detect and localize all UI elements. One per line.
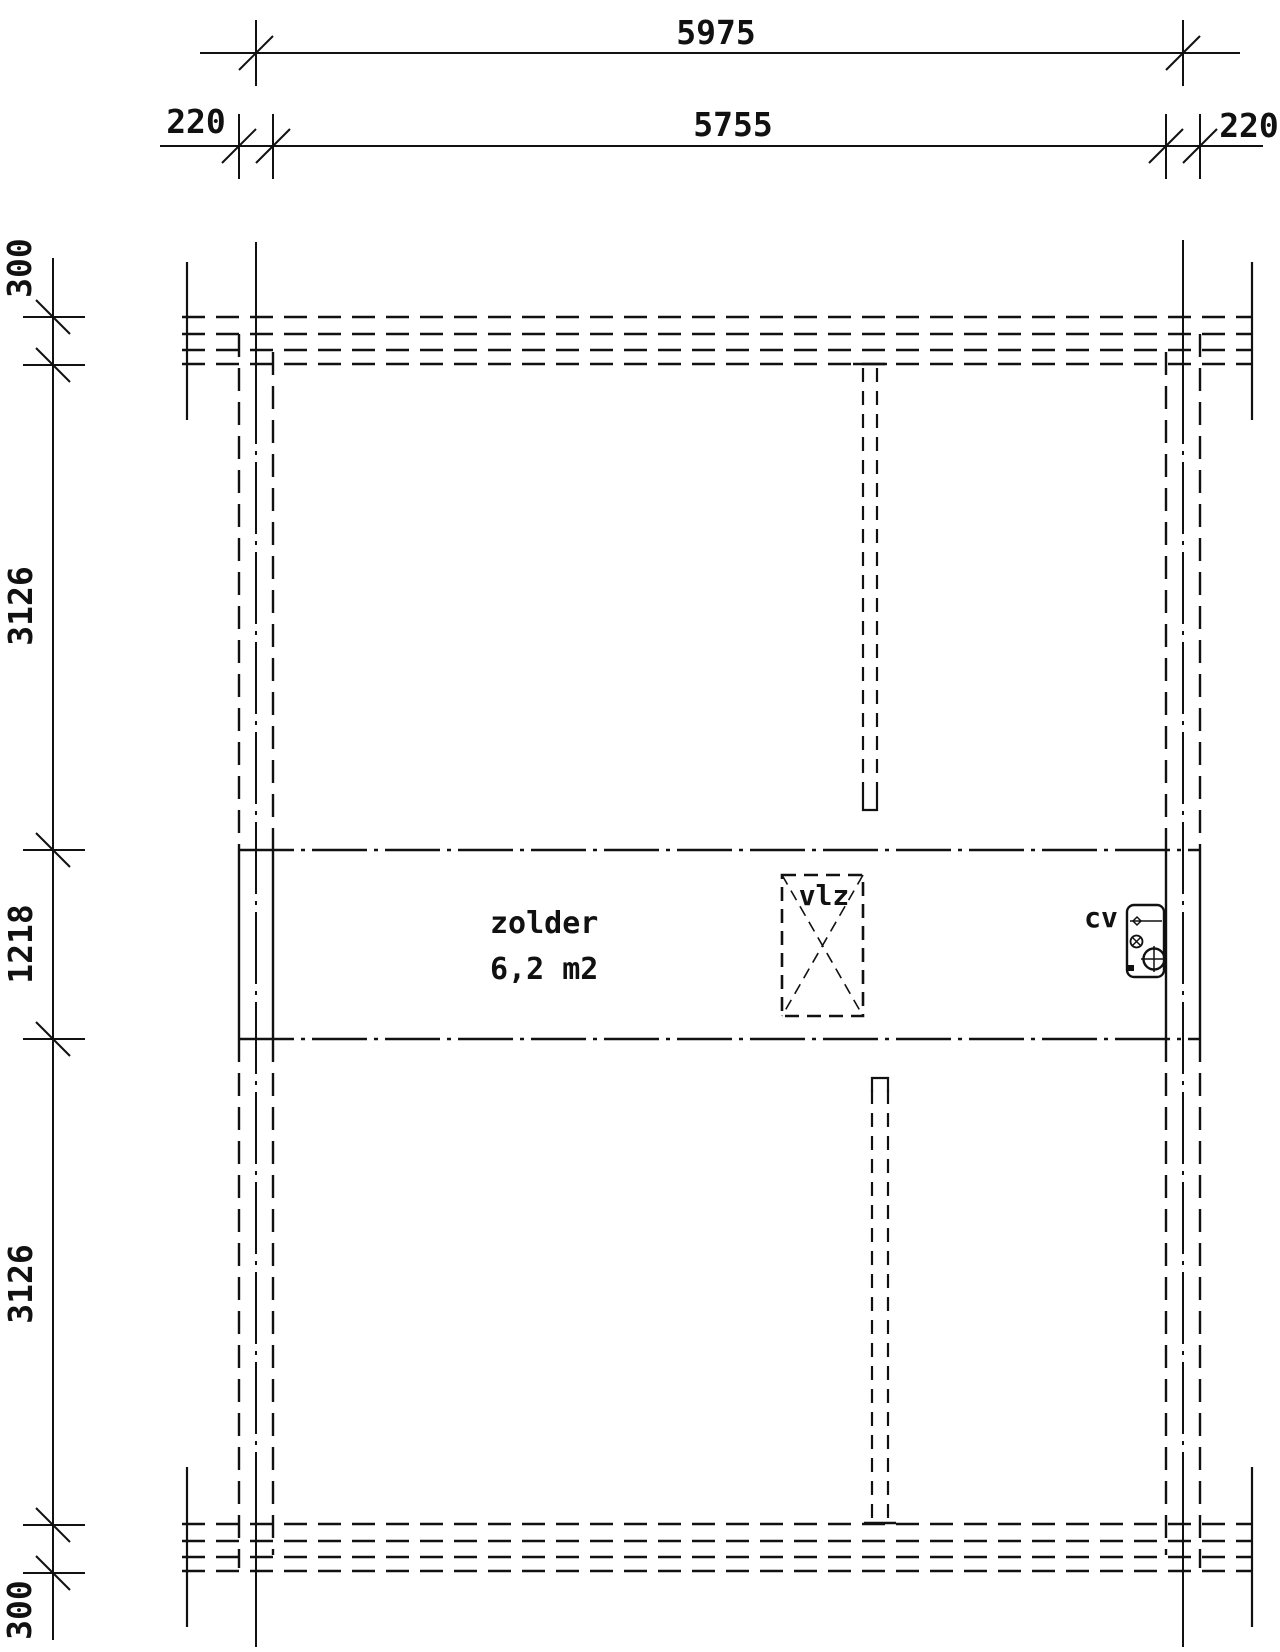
dim-top-overall-label: 5975 bbox=[676, 13, 755, 52]
right-wall bbox=[1166, 240, 1200, 1647]
dim-left-top-wall-label: 300 bbox=[0, 238, 39, 298]
dim-top-right-offset-label: 220 bbox=[1219, 106, 1279, 145]
cv-label: cv bbox=[1084, 901, 1118, 934]
dim-left-upper-bay-label: 3126 bbox=[1, 566, 40, 645]
attic-floor-break-lines bbox=[239, 850, 1200, 1039]
room-name-label: zolder bbox=[490, 906, 598, 941]
dim-left-bottom-wall-label: 300 bbox=[0, 1580, 39, 1640]
dim-left-middle-bay-label: 1218 bbox=[1, 904, 40, 983]
left-wall bbox=[239, 242, 273, 1647]
floor-plan-drawing: 5975 220 5755 220 300 3126 1218 3126 300 bbox=[0, 0, 1280, 1652]
roof-edge-ticks bbox=[187, 262, 1252, 1627]
dim-top-left-offset-label: 220 bbox=[166, 102, 226, 141]
vlz-label: vlz bbox=[799, 879, 850, 912]
room-area-label: 6,2 m2 bbox=[490, 952, 598, 987]
top-wall bbox=[182, 317, 1252, 364]
upper-partition-stub bbox=[853, 364, 887, 810]
dim-top-inner-label: 5755 bbox=[693, 105, 772, 144]
lower-partition-stub bbox=[864, 1078, 896, 1523]
cv-boiler-symbol bbox=[1127, 905, 1167, 977]
cv-boiler-valve bbox=[1128, 965, 1134, 971]
floor-plan-sheet: 5975 220 5755 220 300 3126 1218 3126 300 bbox=[0, 0, 1280, 1652]
bottom-wall bbox=[182, 1524, 1253, 1571]
dim-left-lower-bay-label: 3126 bbox=[1, 1244, 40, 1323]
